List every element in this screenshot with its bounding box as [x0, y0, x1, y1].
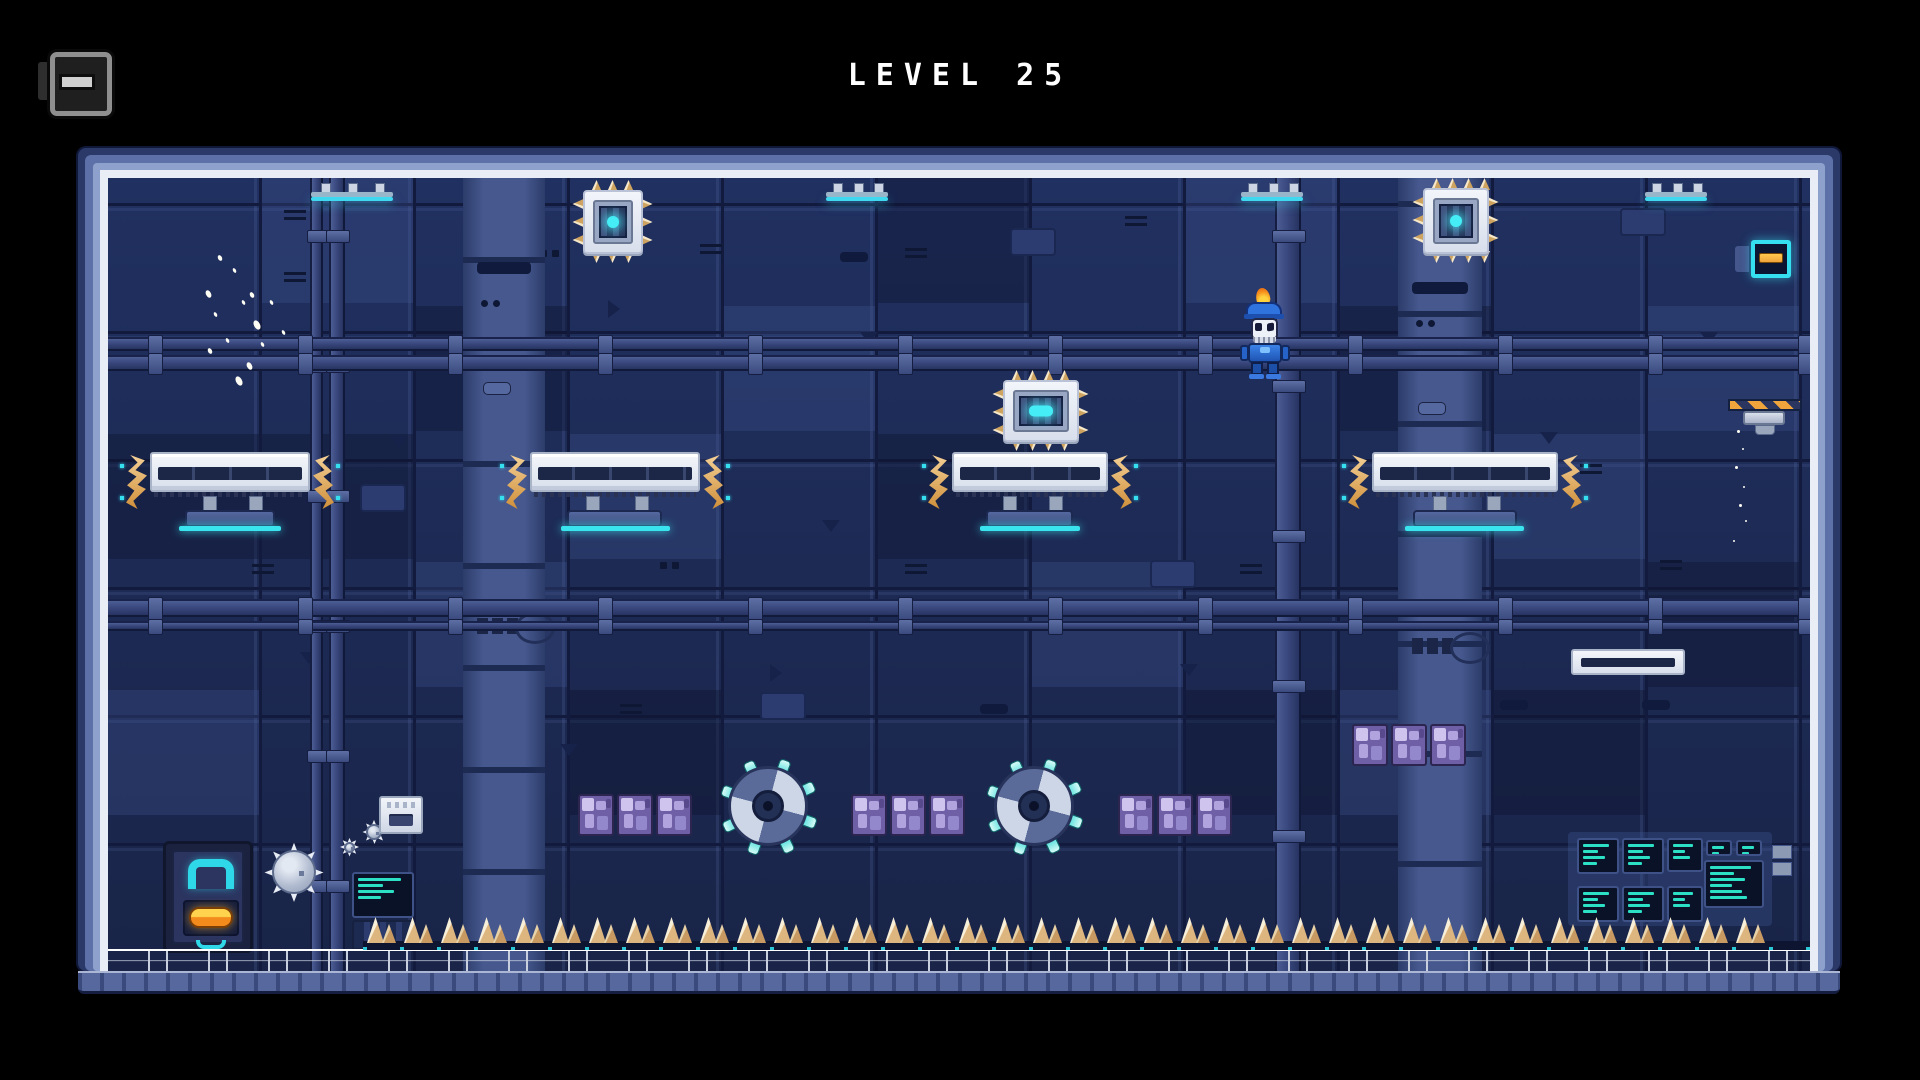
crystal-block	[1430, 724, 1466, 766]
crystal-facet	[1437, 744, 1446, 758]
mine-dispenser	[379, 796, 423, 834]
spike-mine	[342, 840, 357, 855]
dispenser-vent	[387, 802, 415, 808]
pipe-coupling	[148, 335, 163, 355]
machine-column	[1398, 178, 1482, 971]
terminal-text-line	[1673, 904, 1690, 907]
drip-particle	[1735, 466, 1738, 469]
column-rivets	[1416, 320, 1423, 327]
zigzag-dot	[726, 464, 730, 468]
wall-slot	[1642, 700, 1670, 710]
crystal-facet	[909, 816, 920, 830]
floor-spike-icon	[1218, 917, 1235, 943]
pipe-coupling	[598, 335, 613, 355]
platform-glow	[179, 526, 281, 531]
floor-spike-icon	[1714, 924, 1728, 943]
crystal-facet	[645, 799, 650, 808]
pipe-coupling	[898, 619, 913, 635]
zigzag-dot	[120, 496, 124, 500]
crystal-facet	[1371, 746, 1382, 760]
crystal-facet	[1122, 798, 1134, 811]
horizontal-pipe	[108, 621, 1810, 631]
zigzag-dot	[1342, 496, 1346, 500]
floor-spike-icon	[1307, 924, 1321, 943]
floor-spike-icon	[1085, 924, 1099, 943]
dropper-device	[1743, 411, 1785, 425]
pipe-coupling	[1272, 830, 1306, 843]
floor-spike-icon	[774, 917, 791, 943]
player-foot	[1249, 374, 1264, 379]
floor-spike-icon	[678, 924, 692, 943]
crystal-facet	[1409, 731, 1419, 740]
wall-vent-icon	[284, 268, 306, 282]
platform-teeth	[154, 492, 306, 497]
pipe-coupling	[1272, 230, 1306, 243]
pipe-coupling	[1048, 353, 1063, 375]
platform-glow	[561, 526, 670, 531]
terminal-text-line	[1583, 898, 1598, 901]
pipe-coupling	[1348, 597, 1363, 621]
floor-spike-icon	[959, 917, 976, 943]
pipe-coupling	[298, 619, 313, 635]
arena-frame	[78, 148, 1840, 971]
floor-spike-icon	[863, 924, 877, 943]
crystal-facet	[1125, 814, 1134, 828]
pipe-coupling	[1198, 597, 1213, 621]
floor-spike-icon	[1196, 924, 1210, 943]
platform-base	[567, 510, 662, 527]
floor-spike-icon	[900, 924, 914, 943]
floor-spike-icon	[1144, 917, 1161, 943]
crystal-block	[1352, 724, 1388, 766]
pipe-coupling	[148, 597, 163, 621]
crystal-facet	[855, 798, 867, 811]
crystal-facet	[663, 814, 672, 828]
crystal-facet	[582, 798, 594, 811]
pipe-coupling	[307, 230, 328, 243]
crystal-facet	[624, 814, 633, 828]
ceiling-lamp	[1241, 183, 1303, 203]
floor-spike-icon	[1181, 917, 1198, 943]
terminal-text-line	[1710, 872, 1734, 875]
crystal-facet	[1136, 801, 1146, 810]
crystal-facet	[606, 799, 611, 808]
pipe-coupling	[326, 880, 350, 893]
pipe-coupling	[1272, 680, 1306, 693]
ceiling-lamp	[311, 183, 393, 203]
floor-spike-icon	[1566, 924, 1580, 943]
terminal-text-line	[1583, 910, 1597, 913]
zigzag-dot	[922, 464, 926, 468]
crystal-facet	[1356, 728, 1368, 741]
wall-vent-icon	[284, 206, 306, 220]
zigzag-dot	[336, 464, 340, 468]
platform	[952, 452, 1108, 532]
lamp-glow	[1645, 197, 1707, 201]
floor-spike-icon	[1492, 924, 1506, 943]
crystal-facet	[1146, 799, 1151, 808]
floor-spike-icon	[1677, 924, 1691, 943]
saw-hub-center	[1029, 801, 1039, 811]
door-arch-light	[188, 859, 234, 889]
terminal-text-line	[1628, 892, 1654, 895]
floor-spike-icon	[1751, 924, 1765, 943]
pipe-coupling	[1272, 530, 1306, 543]
wall-rivets	[660, 562, 667, 569]
pipe-coupling	[898, 597, 913, 621]
floor-spike-icon	[715, 924, 729, 943]
pipe-coupling	[1198, 619, 1213, 635]
crystal-facet	[1458, 729, 1463, 738]
crystal-facet	[1448, 731, 1458, 740]
pipe-coupling	[307, 750, 328, 763]
terminal-text-line	[1712, 846, 1724, 849]
floor-spike-icon	[663, 917, 680, 943]
crystal-facet	[1224, 799, 1229, 808]
crystal-facet	[1214, 801, 1224, 810]
pipe-coupling	[1048, 597, 1063, 621]
chip-core-light	[1450, 215, 1462, 227]
crystal-block	[1157, 794, 1193, 836]
pipe-coupling	[148, 619, 163, 635]
crystal-facet	[1175, 801, 1185, 810]
wall-slot	[980, 704, 1008, 714]
wall-slot	[1500, 700, 1528, 710]
crystal-facet	[869, 801, 879, 810]
platform	[150, 452, 310, 532]
floor-spike-icon	[1033, 917, 1050, 943]
crystal-facet	[1398, 744, 1407, 758]
crystal-facet	[1203, 814, 1212, 828]
wall-terminal	[352, 872, 414, 918]
terminal-text-line	[1628, 898, 1643, 901]
terminal-screen	[1622, 886, 1664, 922]
player-chest-light	[1260, 347, 1270, 353]
level-title: LEVEL 25	[0, 58, 1920, 93]
drip-particle	[1737, 430, 1740, 433]
crystal-facet	[1185, 799, 1190, 808]
floor-spike-icon	[937, 924, 951, 943]
crystal-facet	[1449, 746, 1460, 760]
crystal-facet	[597, 816, 608, 830]
horizontal-pipe	[108, 355, 1810, 371]
terminal-text-line	[1583, 850, 1598, 853]
zigzag-dot	[1342, 464, 1346, 468]
pipe-coupling	[1648, 335, 1663, 355]
terminal-screen	[1577, 838, 1619, 874]
platform-slot	[158, 467, 302, 480]
pipe-coupling	[748, 335, 763, 355]
wall-plate	[1620, 208, 1666, 236]
floor-spike-icon	[848, 917, 865, 943]
wall-arrow-right-icon	[770, 664, 782, 682]
lamp-glow	[1241, 197, 1303, 201]
platform-teeth	[534, 492, 696, 497]
zigzag-dot	[922, 496, 926, 500]
crystal-facet	[675, 816, 686, 830]
crystal-facet	[636, 816, 647, 830]
terminal-text-line	[1673, 844, 1693, 847]
terminal-text-line	[1628, 910, 1642, 913]
crystal-block	[656, 794, 692, 836]
pipe-coupling	[598, 597, 613, 621]
terminal-text-line	[358, 878, 401, 881]
pipe-coupling	[1348, 619, 1363, 635]
pipe-coupling	[898, 335, 913, 355]
terminal-screen	[1736, 840, 1762, 856]
floor-spike-icon	[752, 924, 766, 943]
floor-spike-icon	[1514, 917, 1531, 943]
crystal-facet	[870, 816, 881, 830]
terminal-screen	[1622, 838, 1664, 874]
floor-spike-icon	[1233, 924, 1247, 943]
wall-vent-icon	[1240, 560, 1262, 574]
sparkle-particle	[241, 300, 246, 306]
exit-door	[163, 841, 253, 953]
wall-vent-icon	[620, 700, 642, 714]
pipe-coupling	[448, 619, 463, 635]
terminal-text-line	[1710, 896, 1747, 899]
floor-spike-icon	[1381, 924, 1395, 943]
power-outlet	[1751, 240, 1791, 278]
crystal-block	[578, 794, 614, 836]
floor-spike-icon	[1529, 924, 1543, 943]
floor-spike-icon	[1011, 924, 1025, 943]
crystal-block	[617, 794, 653, 836]
terminal-screen	[1704, 860, 1764, 908]
chip-core-light	[607, 216, 619, 228]
floor-spike-icon	[441, 917, 458, 943]
zigzag-dot	[500, 464, 504, 468]
terminal-side-tab	[1772, 862, 1792, 876]
terminal-text-line	[1583, 904, 1605, 907]
player-foot	[1266, 374, 1281, 379]
crystal-facet	[879, 799, 884, 808]
crystal-facet	[1161, 798, 1173, 811]
wall-plate	[360, 484, 406, 512]
floor-spike-icon	[1070, 917, 1087, 943]
terminal-text-line	[1742, 852, 1749, 855]
floor-spike-icon	[552, 917, 569, 943]
horizontal-pipe	[108, 337, 1810, 351]
lamp-glow	[311, 197, 393, 201]
pipe-coupling	[298, 597, 313, 621]
floor-spike-icon	[567, 924, 581, 943]
crystal-facet	[1395, 728, 1407, 741]
wall-plate	[760, 692, 806, 720]
pipe-coupling	[1798, 619, 1810, 635]
pipe-coupling	[298, 335, 313, 355]
door-lamp	[189, 907, 233, 928]
terminal-text-line	[1583, 856, 1605, 859]
floor-spike-icon	[1344, 924, 1358, 943]
platform-teeth	[1376, 492, 1554, 497]
floor-spike-icon	[1551, 917, 1568, 943]
platform-slot	[1380, 467, 1550, 480]
column-slot	[477, 262, 531, 274]
pipe-coupling	[1048, 619, 1063, 635]
crystal-facet	[621, 798, 633, 811]
terminal-screen	[1706, 840, 1732, 856]
pipe-coupling	[748, 353, 763, 375]
column-button	[483, 382, 511, 395]
platform	[530, 452, 700, 532]
terminal-text-line	[1583, 844, 1609, 847]
crystal-facet	[1359, 744, 1368, 758]
zigzag-dot	[1584, 496, 1588, 500]
terminal-text-line	[358, 884, 383, 887]
zigzag-dot	[1134, 496, 1138, 500]
crystal-facet	[596, 801, 606, 810]
crystal-facet	[1419, 729, 1424, 738]
crystal-facet	[918, 799, 923, 808]
spiked-chip-trap	[583, 190, 643, 254]
pipe-coupling	[748, 597, 763, 621]
zigzag-dot	[500, 496, 504, 500]
crystal-facet	[684, 799, 689, 808]
zigzag-dot	[336, 496, 340, 500]
terminal-text-line	[1710, 884, 1732, 887]
terminal-text-line	[1628, 904, 1650, 907]
platform-base	[986, 510, 1073, 527]
crystal-facet	[948, 816, 959, 830]
terminal-text-line	[1673, 856, 1690, 859]
saw-hub-center	[763, 801, 773, 811]
crystal-facet	[858, 814, 867, 828]
pipe-coupling	[598, 353, 613, 375]
wall-panel-dark	[878, 178, 1029, 303]
column-squares	[1412, 638, 1454, 654]
crystal-facet	[674, 801, 684, 810]
sparkle-particle	[232, 268, 237, 274]
platform-slot	[538, 467, 692, 480]
terminal-text-line	[1628, 856, 1650, 859]
terminal-text-line	[1712, 852, 1719, 855]
outlet-bar	[1759, 253, 1783, 263]
floor-spike-icon	[626, 917, 643, 943]
pipe-coupling	[1498, 619, 1513, 635]
player-torso	[1248, 343, 1282, 363]
column-button	[1418, 402, 1446, 415]
platform-glow	[1405, 526, 1524, 531]
pipe-coupling	[148, 353, 163, 375]
crystal-block	[851, 794, 887, 836]
pipe-coupling	[1498, 597, 1513, 621]
crystal-facet	[660, 798, 672, 811]
terminal-text-line	[1628, 850, 1643, 853]
crystal-facet	[897, 814, 906, 828]
floor-spike-icon	[1640, 924, 1654, 943]
wall-vent-icon	[905, 244, 927, 258]
floor-spike-icon	[700, 917, 717, 943]
crystal-facet	[1410, 746, 1421, 760]
player-eye	[1255, 323, 1262, 331]
mine-spot	[299, 871, 304, 876]
mine-body	[272, 850, 316, 894]
crystal-block	[890, 794, 926, 836]
crystal-facet	[1434, 728, 1446, 741]
hazard-stripe-bar	[1728, 399, 1802, 411]
terminal-side-tab	[1772, 845, 1792, 859]
spiked-chip-trap	[1003, 380, 1079, 442]
terminal-text-line	[1742, 846, 1754, 849]
sparkle-particle	[249, 291, 255, 298]
pipe-coupling	[1648, 353, 1663, 375]
pipe-coupling	[1348, 353, 1363, 375]
platform-base	[185, 510, 275, 527]
pipe-coupling	[326, 750, 350, 763]
crystal-facet	[1176, 816, 1187, 830]
crystal-block	[1118, 794, 1154, 836]
sparkle-particle	[217, 254, 223, 261]
hazard-zigzag-icon	[1111, 455, 1132, 509]
zigzag-dot	[726, 496, 730, 500]
floor-spike-icon	[419, 924, 433, 943]
terminal-text-line	[358, 890, 394, 893]
drip-particle	[1742, 448, 1744, 450]
crystal-facet	[1380, 729, 1385, 738]
floor-spike-icon	[974, 924, 988, 943]
floor-spike-icon	[604, 924, 618, 943]
hazard-zigzag-icon	[1348, 455, 1369, 509]
arena-interior[interactable]	[108, 178, 1810, 971]
pipe-coupling	[326, 230, 350, 243]
wall-vent-icon	[700, 240, 722, 254]
floor-spike-icon	[1329, 917, 1346, 943]
floor-spike-icon	[1366, 917, 1383, 943]
wall-vent-icon	[252, 560, 274, 574]
ceiling-lamp	[826, 183, 888, 203]
floor-spike-icon	[922, 917, 939, 943]
crystal-facet	[936, 814, 945, 828]
terminal-text-line	[1583, 892, 1609, 895]
floor-spike-icon	[1603, 924, 1617, 943]
wall-panel-light	[108, 690, 259, 815]
pipe-coupling	[1348, 335, 1363, 355]
ceiling-lamp	[1645, 183, 1707, 203]
floor-spike-icon	[789, 924, 803, 943]
wall-vent-icon	[1660, 556, 1682, 570]
wall-vent-icon	[1125, 212, 1147, 226]
pipe-coupling	[448, 353, 463, 375]
sparkle-particle	[204, 289, 212, 298]
outlet-bracket	[1735, 246, 1749, 272]
shelf-slot	[1581, 658, 1675, 667]
floor-walkway	[108, 949, 1810, 971]
terminal-text-line	[1673, 892, 1693, 895]
pipe-coupling	[1798, 597, 1810, 621]
terminal-text-line	[1710, 890, 1742, 893]
floor-spike-icon	[589, 917, 606, 943]
platform-teeth	[956, 492, 1104, 497]
frame-bottom-rail	[78, 971, 1840, 994]
crystal-facet	[933, 798, 945, 811]
terminal-screen	[1577, 886, 1619, 922]
floor-spike-icon	[996, 917, 1013, 943]
player-arm	[1281, 345, 1290, 361]
crystal-block	[929, 794, 965, 836]
wall-slot	[840, 252, 868, 262]
terminal-text-line	[1628, 844, 1654, 847]
machine-column	[463, 178, 545, 971]
crystal-facet	[894, 798, 906, 811]
door-bracket-light	[196, 940, 226, 949]
pipe-coupling	[1498, 353, 1513, 375]
terminal-text-line	[1673, 898, 1685, 901]
saw-blade-trap	[719, 757, 817, 855]
crystal-facet	[1164, 814, 1173, 828]
dropper-nub	[1755, 425, 1775, 435]
